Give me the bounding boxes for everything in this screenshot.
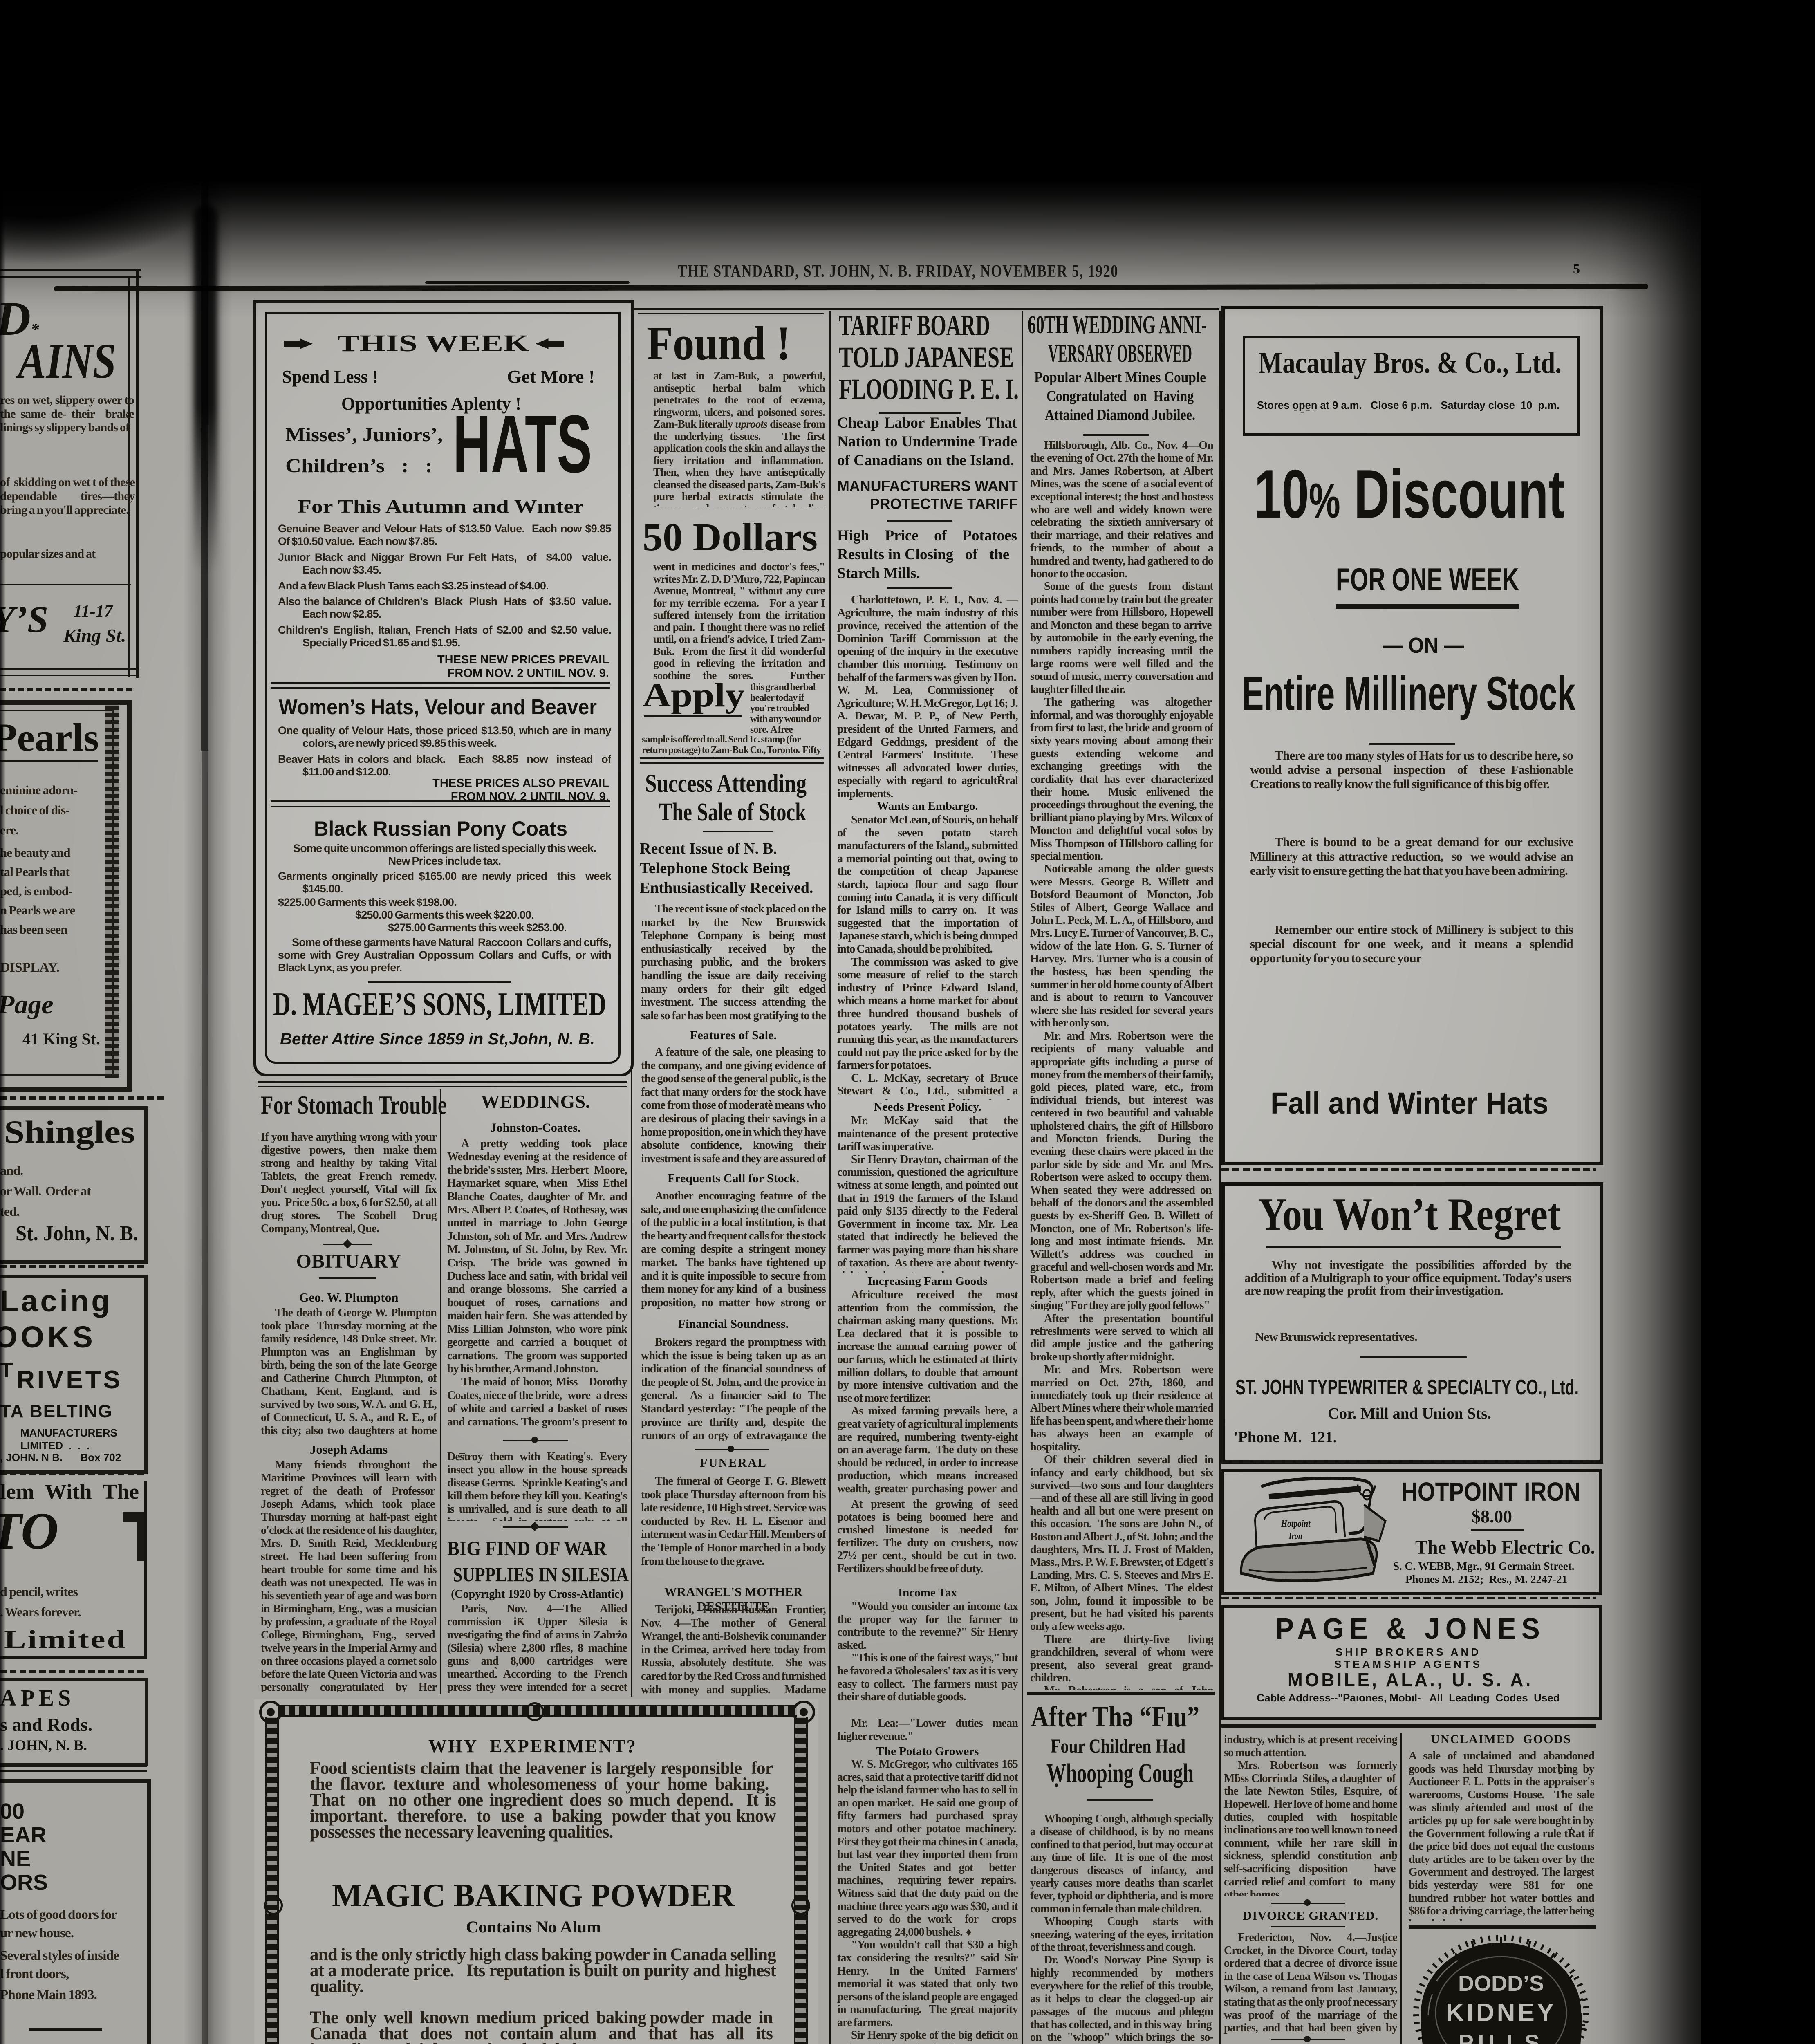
svg-text:KIDNEY: KIDNEY xyxy=(1446,1999,1556,2027)
svg-text:DODD’S: DODD’S xyxy=(1458,1971,1544,1996)
svg-text:Hotpoint: Hotpoint xyxy=(1281,1518,1311,1529)
svg-text:Iron: Iron xyxy=(1288,1530,1302,1541)
svg-text:PILLS: PILLS xyxy=(1459,2030,1544,2044)
